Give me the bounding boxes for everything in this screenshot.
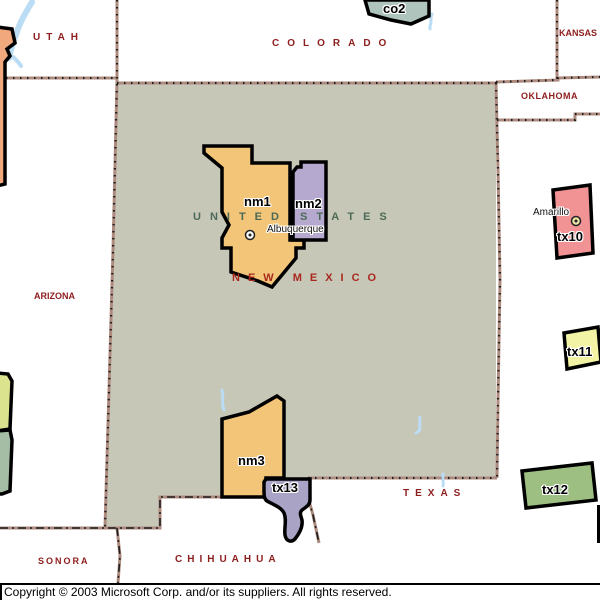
- copyright-text: Copyright © 2003 Microsoft Corp. and/or …: [4, 585, 392, 599]
- district-nm2-shape[interactable]: [293, 162, 326, 240]
- state-new-mexico-shape[interactable]: [105, 83, 496, 527]
- albuquerque-marker-dot: [249, 234, 252, 237]
- district-west-sage-shape[interactable]: [0, 430, 12, 494]
- copyright-bar: Copyright © 2003 Microsoft Corp. and/or …: [0, 583, 600, 600]
- district-west-yellowgreen-shape[interactable]: [0, 373, 12, 431]
- district-tx11-shape[interactable]: [564, 327, 600, 369]
- district-tx12-shape[interactable]: [522, 463, 596, 508]
- map-window: UTAH COLORADO KANSAS OKLAHOMA ARIZONA TE…: [0, 0, 600, 600]
- map-canvas[interactable]: [0, 0, 600, 583]
- border-river: [443, 474, 444, 486]
- rio-grande-upper: [222, 390, 224, 410]
- amarillo-marker-dot: [575, 220, 578, 223]
